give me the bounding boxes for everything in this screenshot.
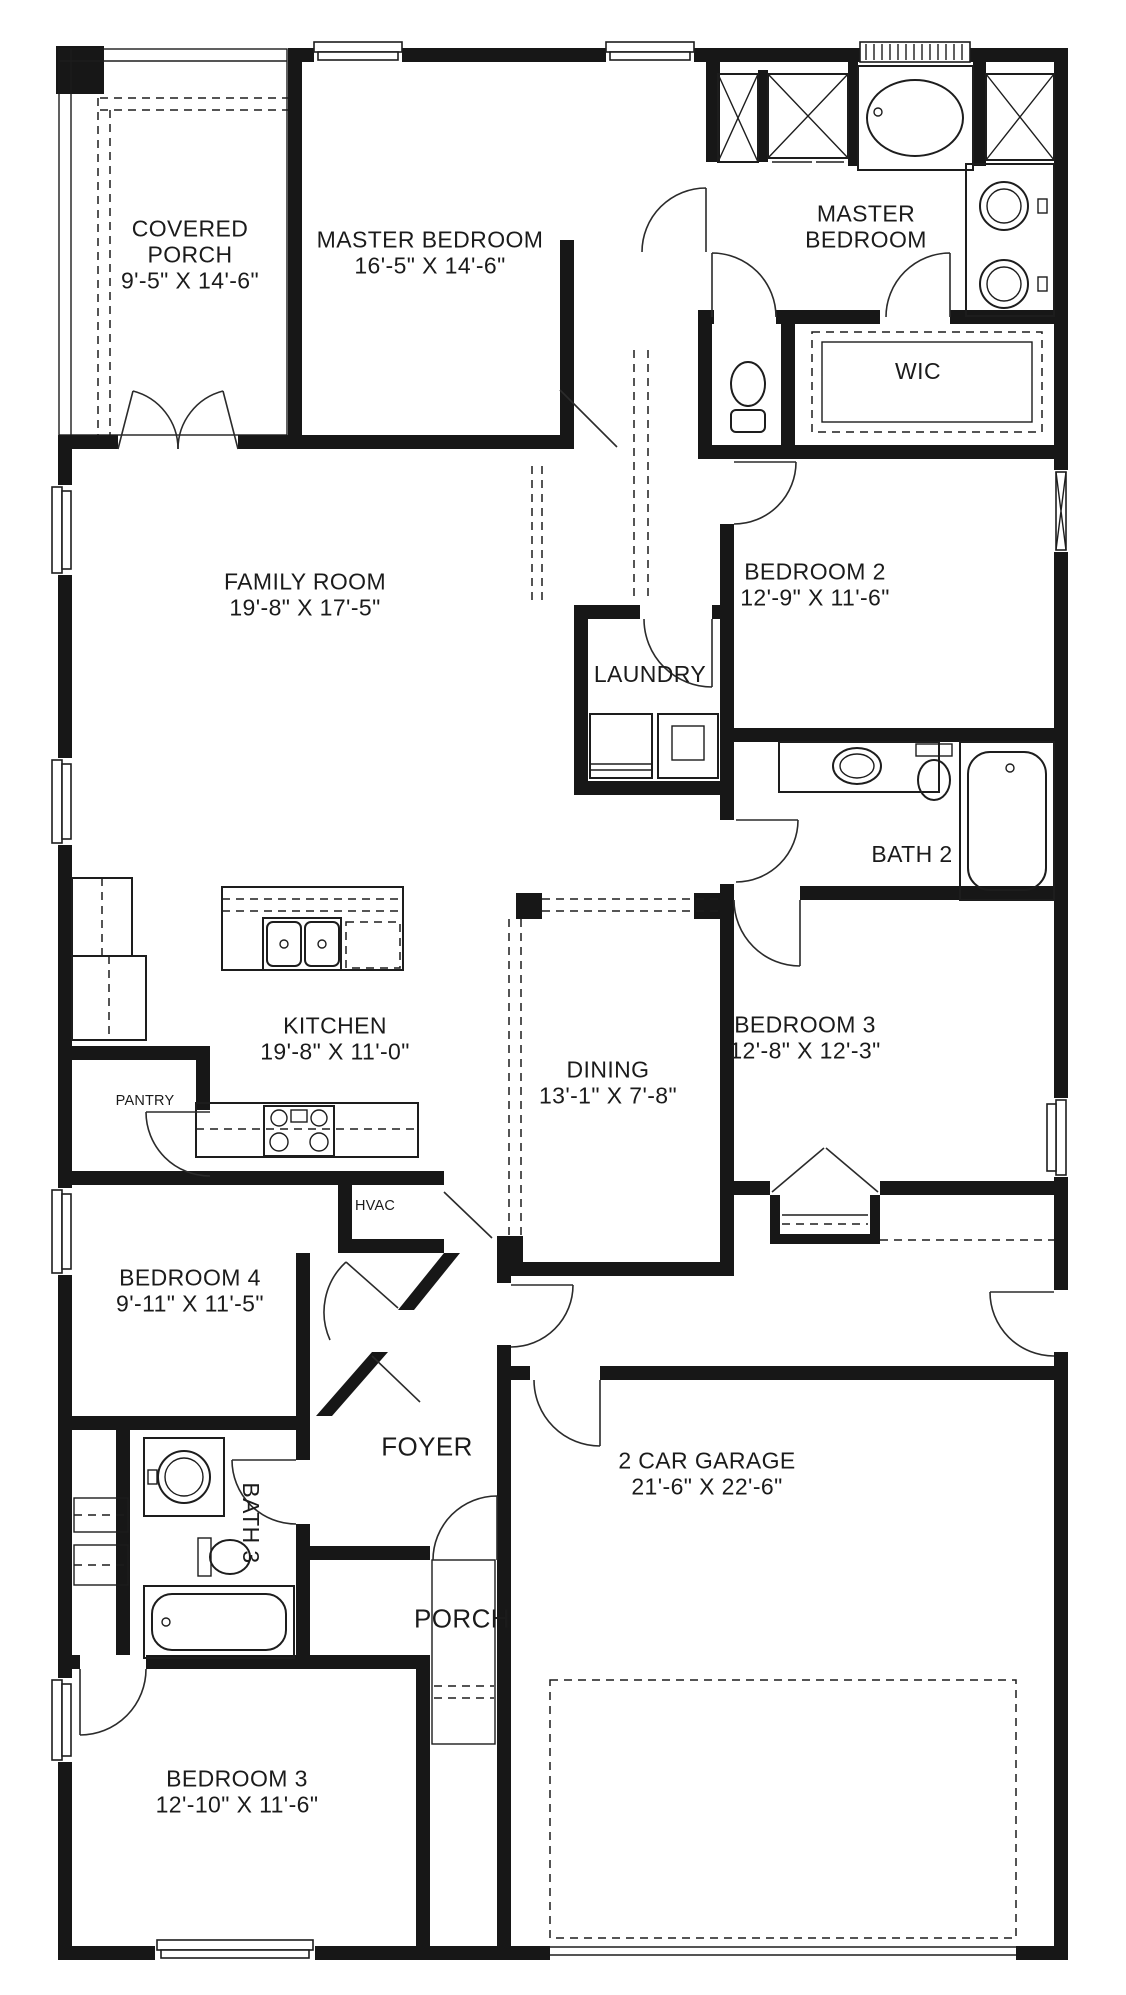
washer-icon [590, 714, 652, 778]
label-garage: 2 CAR GARAGE21'-6" X 22'-6" [618, 1448, 795, 1500]
door-bedroom4 [324, 1262, 398, 1340]
bath2-fixtures [779, 742, 1054, 900]
french-door [178, 391, 238, 449]
label-hvac: HVAC [355, 1198, 395, 1214]
garage-door-track [550, 1680, 1016, 1938]
french-door [118, 391, 178, 449]
floor-plan-drawing [0, 0, 1126, 1995]
label-bedroom-2: BEDROOM 212'-9" X 11'-6" [740, 559, 890, 611]
label-bath-2: BATH 2 [871, 842, 952, 868]
label-bedroom-3-front: BEDROOM 312'-10" X 11'-6" [156, 1766, 319, 1818]
label-pantry: PANTRY [116, 1093, 175, 1109]
tub-icon [858, 66, 973, 170]
vanity-icon [966, 164, 1054, 316]
laundry-fixtures [590, 714, 718, 778]
door-closet [372, 1356, 420, 1402]
dryer-icon [658, 714, 718, 778]
label-bath-3: BATH 3 [237, 1482, 263, 1563]
door-hall-garage [511, 1285, 573, 1347]
label-bedroom-4: BEDROOM 49'-11" X 11'-5" [116, 1265, 264, 1317]
label-bedroom-3-mid: BEDROOM 312'-8" X 12'-3" [729, 1012, 880, 1064]
vanity-icon [144, 1438, 224, 1516]
walls [56, 46, 1068, 1960]
toilet-icon [731, 362, 765, 406]
door-bedroom2 [734, 462, 796, 524]
floor-plan: COVERED PORCH9'-5" X 14'-6" MASTER BEDRO… [0, 0, 1126, 1995]
door-wc [712, 253, 776, 317]
toilet-icon [916, 744, 952, 756]
dishwasher-icon [346, 922, 400, 968]
label-kitchen: KITCHEN19'-8" X 11'-0" [260, 1013, 410, 1065]
stove-icon [264, 1106, 334, 1156]
label-covered-porch: COVERED PORCH9'-5" X 14'-6" [115, 216, 265, 293]
label-dining: DINING13'-1" X 7'-8" [539, 1057, 677, 1109]
door-master-suite [642, 188, 706, 252]
door-garage-entry [534, 1380, 600, 1446]
label-porch: PORCH [414, 1604, 510, 1633]
front-porch-outline [432, 1560, 495, 1744]
bath3-fixtures [144, 1438, 294, 1658]
door-wic [886, 253, 950, 317]
door-pantry [146, 1112, 210, 1176]
door-bedroom3-front [80, 1669, 146, 1735]
closet-double-doors [772, 1148, 878, 1192]
label-master-bath: MASTER BEDROOM [802, 201, 930, 253]
front-door [433, 1496, 497, 1560]
label-master-bedroom: MASTER BEDROOM16'-5" X 14'-6" [317, 227, 544, 279]
door-bedroom3 [734, 900, 800, 966]
sink-icon [158, 1451, 210, 1503]
label-foyer: FOYER [381, 1432, 473, 1461]
door-hvac [444, 1192, 492, 1238]
tub-icon [144, 1586, 294, 1658]
label-family-room: FAMILY ROOM19'-8" X 17'-5" [224, 569, 386, 621]
back-door [990, 1292, 1054, 1356]
label-laundry: LAUNDRY [594, 662, 706, 688]
door-bath2 [736, 820, 798, 882]
label-wic: WIC [895, 359, 941, 385]
refrigerator-icon [72, 878, 132, 956]
